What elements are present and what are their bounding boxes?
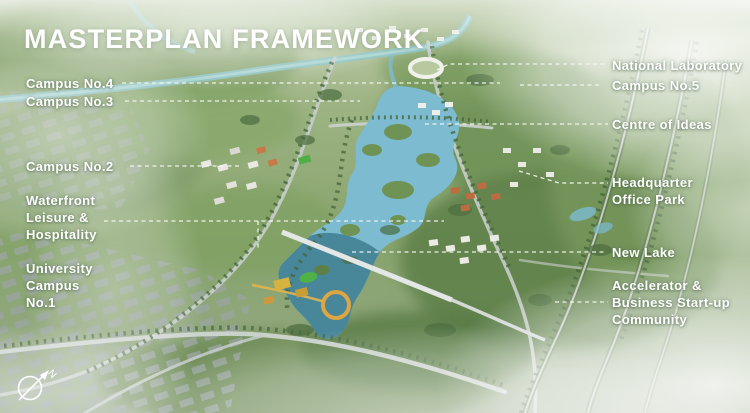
page-title: MASTERPLAN FRAMEWORK [24, 24, 424, 55]
masterplan-slide: MASTERPLAN FRAMEWORK Campus No.4 Campus … [0, 0, 750, 413]
leader-national-laboratory [437, 64, 608, 70]
label-campus-no2: Campus No.2 [26, 158, 113, 175]
leader-headquarter [519, 171, 608, 183]
label-campus-no5: Campus No.5 [612, 77, 699, 94]
label-headquarter-office-park: Headquarter Office Park [612, 174, 693, 208]
label-university-campus-no1: University Campus No.1 [26, 260, 93, 311]
leader-waterfront [104, 221, 444, 251]
label-campus-no3: Campus No.3 [26, 93, 113, 110]
label-campus-no4: Campus No.4 [26, 75, 113, 92]
label-waterfront-leisure-hospitality: Waterfront Leisure & Hospitality [26, 192, 97, 243]
label-national-laboratory: National Laboratory [612, 57, 742, 74]
label-accelerator-business-startup-community: Accelerator & Business Start-up Communit… [612, 277, 730, 328]
label-new-lake: New Lake [612, 244, 675, 261]
label-centre-of-ideas: Centre of Ideas [612, 116, 712, 133]
compass-north-letter: N [45, 368, 58, 381]
north-compass-icon: N [8, 362, 60, 413]
